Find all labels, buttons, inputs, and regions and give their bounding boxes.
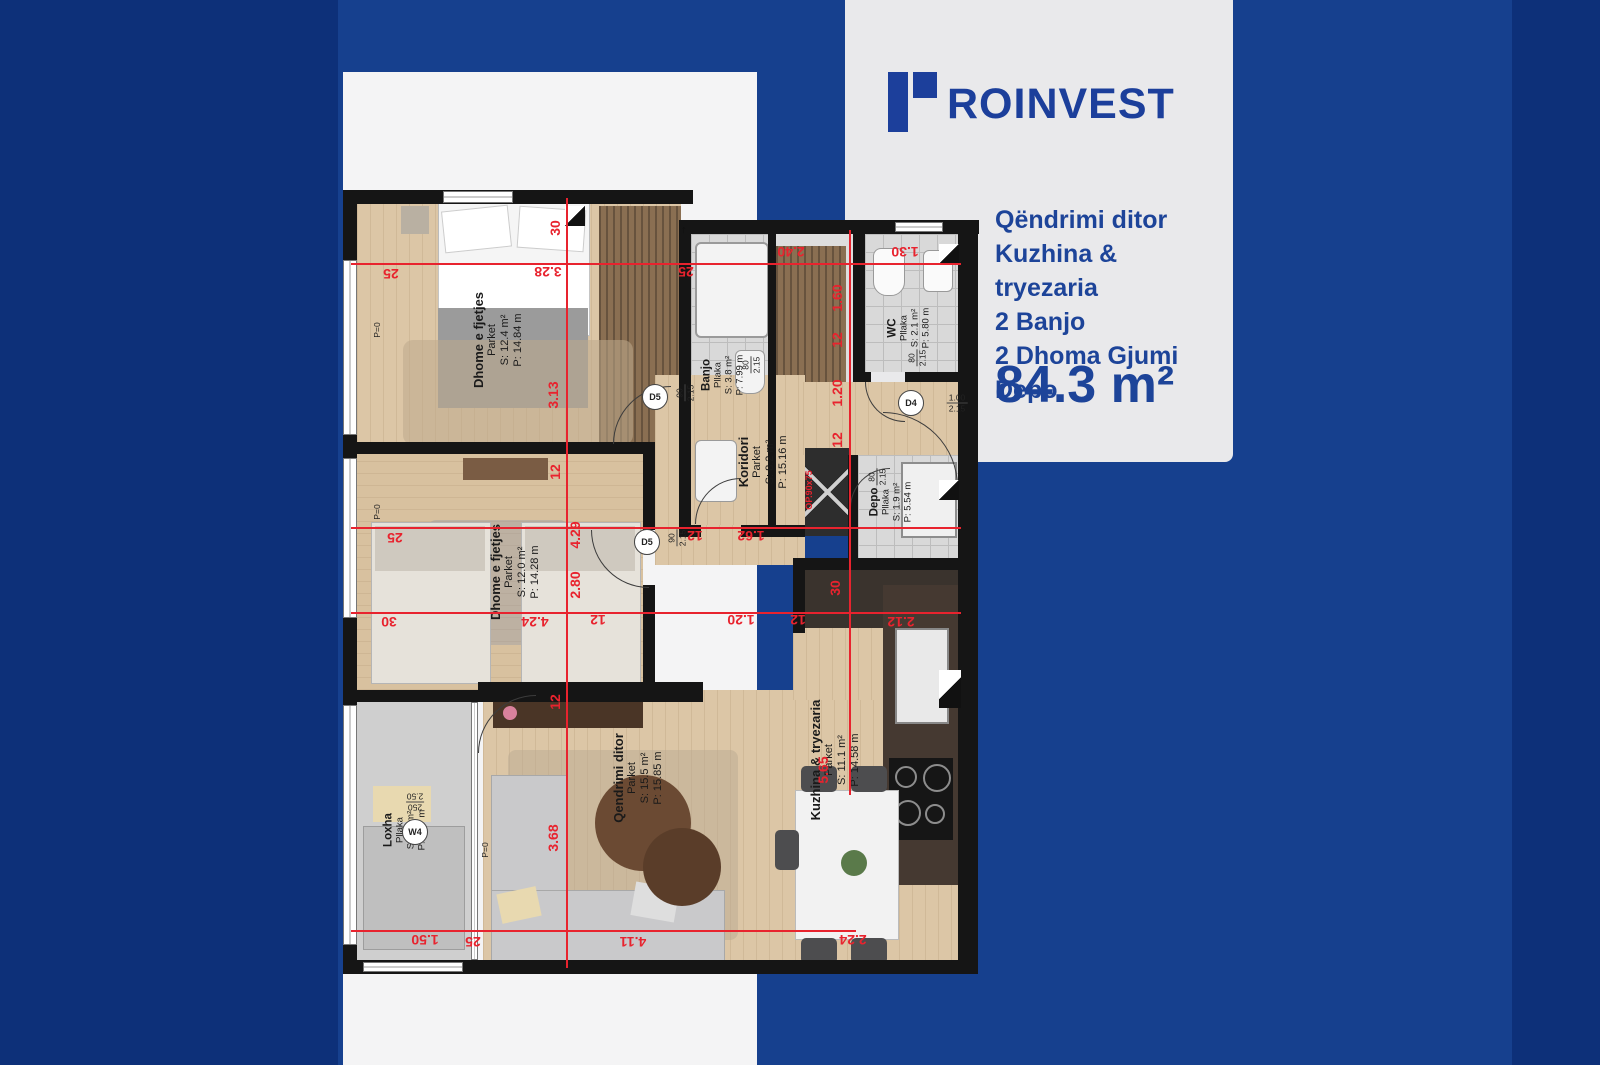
logo-bar-icon	[888, 72, 908, 132]
dimension-label: 30	[381, 614, 397, 630]
room-s: S: 15.5 m²	[639, 733, 652, 823]
dimension-label: 2.24	[839, 932, 866, 948]
wall	[853, 372, 871, 382]
door-tag-d5: D5	[634, 529, 660, 555]
entry-arrow-icon: ↑	[681, 224, 687, 236]
nightstand-icon	[401, 206, 429, 234]
dimension-label: 4.11	[620, 934, 646, 950]
b: 2.50	[406, 792, 424, 802]
left-navy-band	[0, 0, 338, 1065]
b: 2.15	[918, 350, 928, 367]
dimension-label: 12	[590, 612, 606, 628]
opening-size-fraction: 802.15	[867, 469, 888, 486]
b: 2.15	[678, 530, 688, 547]
dimension-label: 1.20	[829, 379, 845, 406]
burner-icon	[925, 804, 945, 824]
dimension-label: 12	[829, 432, 845, 448]
room-name: Loxha	[383, 810, 395, 851]
room-label: DepoPllakaS: 1.9 m²P: 5.54 m	[869, 482, 914, 523]
room-name: Depo	[869, 482, 881, 523]
door-size-fraction: 902.15	[675, 385, 696, 402]
window	[343, 260, 357, 435]
dimension-label: 12	[829, 332, 845, 348]
dimension-label: 12	[547, 694, 563, 710]
dimension-label: 30	[827, 580, 843, 596]
wall	[958, 220, 978, 974]
door-tag-d4: D4	[898, 390, 924, 416]
window	[363, 962, 463, 972]
dimension-label: 2.12	[887, 614, 914, 630]
p0-label: P=0	[480, 842, 490, 857]
opening-size-fraction: 802.15	[741, 357, 762, 374]
total-area: 84.3 m²	[995, 355, 1174, 415]
room-name: Koridori	[736, 435, 751, 488]
dimension-label: OP.90x75	[804, 470, 814, 509]
room-floor: Parket	[751, 435, 764, 488]
door-size-fraction: 902.15	[667, 530, 688, 547]
dimension-label: 3.28	[534, 264, 561, 280]
room-p: P: 15.85 m	[652, 733, 665, 823]
burner-icon	[923, 764, 951, 792]
plant-icon	[841, 850, 867, 876]
t: 80	[867, 469, 878, 486]
window	[343, 705, 357, 945]
wall	[643, 442, 655, 530]
room-name: Qendrimi ditor	[611, 733, 626, 823]
dimension-label: 25	[383, 266, 399, 282]
room-s: S: 12.4 m²	[499, 292, 512, 388]
dimension-label: 5.65	[815, 756, 831, 783]
room-label: Dhome e fjetjesParketS: 12.0 m²P: 14.28 …	[488, 524, 542, 620]
balcony-glass	[471, 702, 478, 960]
room-s: S: 8.2 m²	[764, 435, 777, 488]
wall	[905, 372, 958, 382]
floor-plan: ↑ 253.28252.401.3025121.62304.24121.2012…	[343, 190, 983, 976]
room-p: P: 5.80 m	[921, 308, 932, 349]
dimension-label: 12	[790, 612, 806, 628]
room-label: BanjoPllakaS: 3.8 m²P: 7.99 m	[701, 355, 746, 396]
roinvest-logo: ROINVEST	[888, 72, 1175, 132]
dimension-label: 1.30	[891, 244, 918, 260]
dimension-label: 25	[465, 934, 481, 950]
room-name: Dhome e fjetjes	[488, 524, 503, 620]
dimension-label: 3.13	[545, 381, 561, 408]
window	[443, 191, 513, 203]
bathtub-icon	[695, 242, 769, 338]
room-label: KoridoriParketS: 8.2 m²P: 15.16 m	[736, 435, 790, 488]
room-name: Banjo	[701, 355, 713, 396]
dimension-label: 2.40	[777, 244, 804, 260]
feature-item: 2 Banjo	[995, 305, 1225, 339]
dimension-label: 25	[387, 530, 403, 546]
p0-label: P=0	[372, 504, 382, 519]
room-name: WC	[887, 308, 899, 349]
room-floor: Pllaka	[713, 355, 724, 396]
chair-icon	[775, 830, 799, 870]
dim-line	[351, 527, 961, 529]
dimension-label: 1.20	[727, 612, 754, 628]
dim-line	[351, 612, 961, 614]
door-size-fraction: 1.002.15	[947, 393, 968, 414]
logo-wordmark: ROINVEST	[947, 80, 1175, 129]
room-p: P: 5.54 m	[903, 482, 914, 523]
room-label: Dhome e fjetjesParketS: 12.4 m²P: 14.84 …	[471, 292, 525, 388]
column-marker-icon	[939, 244, 959, 264]
room-floor: Pllaka	[881, 482, 892, 523]
dimension-label: 1.50	[411, 932, 438, 948]
b: 2.15	[947, 404, 968, 414]
door-tag-d5: D5	[642, 384, 668, 410]
burner-icon	[895, 766, 917, 788]
room-s: S: 11.1 m²	[836, 700, 849, 821]
p0-label: P=0	[372, 322, 382, 337]
coffee-table-icon	[643, 828, 721, 906]
room-floor: Parket	[486, 292, 499, 388]
t: 80	[741, 357, 752, 374]
dimension-label: 1.62	[737, 528, 764, 544]
column-marker-icon	[939, 670, 961, 708]
wall	[343, 190, 693, 204]
b: 2.15	[752, 357, 762, 374]
dimension-label: 1.60	[829, 284, 845, 311]
dimension-label: 30	[547, 220, 563, 236]
t: 80	[907, 350, 918, 367]
b: 2.15	[686, 385, 696, 402]
room-label: Qendrimi ditorParketS: 15.5 m²P: 15.85 m	[611, 733, 665, 823]
t: 1.00	[947, 393, 968, 404]
b: 2.15	[878, 469, 888, 486]
t: 250	[406, 802, 424, 813]
dimension-label: 4.29	[567, 521, 583, 548]
room-p: P: 14.84 m	[512, 292, 525, 388]
wall	[643, 585, 655, 690]
feature-item: Kuzhina & tryezaria	[995, 237, 1225, 305]
wall	[343, 442, 643, 454]
wall	[853, 220, 865, 382]
room-s: S: 12.0 m²	[516, 524, 529, 620]
dimension-label: 3.68	[545, 824, 561, 851]
dresser-icon	[463, 458, 548, 480]
wall	[343, 690, 478, 702]
dimension-label: 12	[687, 528, 703, 544]
room-s: S: 3.8 m²	[724, 355, 735, 396]
t: 90	[675, 385, 686, 402]
opening-size-fraction: 802.15	[907, 350, 928, 367]
room-floor: Pllaka	[899, 308, 910, 349]
door-tag-w4: W4	[402, 819, 428, 845]
dimension-label: 25	[678, 264, 694, 280]
dim-line	[849, 230, 851, 795]
column-marker-icon	[565, 206, 585, 226]
room-floor: Parket	[626, 733, 639, 823]
dimension-label: 12	[547, 464, 563, 480]
room-s: S: 1.9 m²	[892, 482, 903, 523]
room-label: WCPllakaS: 2.1 m²P: 5.80 m	[887, 308, 932, 349]
door-size-fraction: 2502.50	[406, 792, 424, 813]
right-navy-band	[1512, 0, 1600, 1065]
room-name: Dhome e fjetjes	[471, 292, 486, 388]
dim-line	[351, 263, 961, 265]
wall	[793, 558, 958, 570]
pillow-icon	[441, 205, 512, 254]
t: 90	[667, 530, 678, 547]
room-s: S: 2.1 m²	[910, 308, 921, 349]
column-marker-icon	[939, 480, 959, 500]
window	[343, 458, 357, 618]
room-p: P: 15.16 m	[777, 435, 790, 488]
logo-square-icon	[913, 72, 937, 98]
window	[895, 222, 943, 232]
dimension-label: 4.24	[521, 614, 548, 630]
room-floor: Parket	[503, 524, 516, 620]
feature-item: Qëndrimi ditor	[995, 203, 1225, 237]
dimension-label: 2.80	[567, 571, 583, 598]
room-p: P: 14.28 m	[529, 524, 542, 620]
